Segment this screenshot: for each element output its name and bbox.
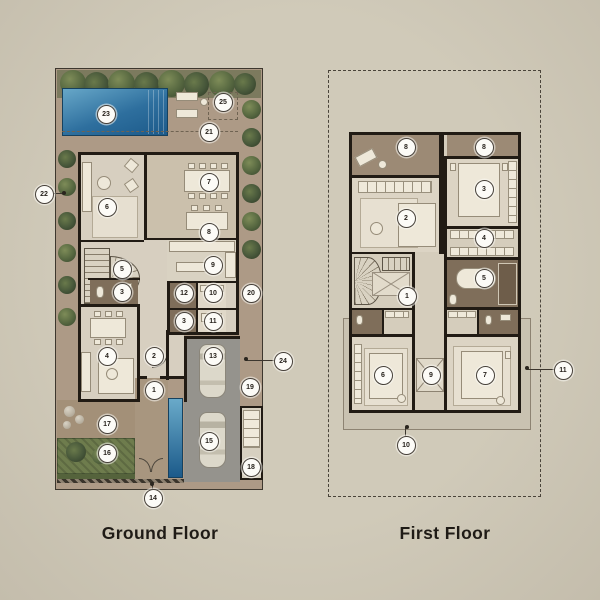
keynote-marker-9: 9 — [422, 366, 441, 385]
pouf — [496, 396, 505, 405]
keynote-marker-16: 16 — [98, 444, 117, 463]
keynote-marker-2: 2 — [145, 347, 164, 366]
kitchen-counter — [225, 252, 236, 278]
keynote-marker-8: 8 — [475, 138, 494, 157]
palm-tree — [58, 212, 76, 230]
palm-tree — [242, 184, 261, 203]
keynote-marker-25: 25 — [214, 93, 233, 112]
keynote-marker-11: 11 — [554, 361, 573, 380]
chair — [210, 193, 217, 199]
desk — [81, 352, 91, 392]
chair — [94, 339, 101, 345]
keynote-marker-12: 12 — [175, 284, 194, 303]
bush — [66, 442, 86, 462]
chair — [94, 311, 101, 317]
chair — [105, 311, 112, 317]
chair — [210, 163, 217, 169]
wall — [184, 336, 240, 339]
keynote-marker-3: 3 — [175, 312, 194, 331]
wall — [412, 252, 415, 413]
wall — [160, 376, 184, 379]
wall — [168, 332, 239, 335]
closet — [385, 311, 409, 318]
keynote-marker-1: 1 — [145, 381, 164, 400]
palm-tree — [58, 276, 76, 294]
chair — [116, 339, 123, 345]
wall — [477, 310, 479, 334]
wall — [382, 310, 384, 334]
keynote-marker-13: 13 — [204, 347, 223, 366]
keynote-marker-22: 22 — [35, 185, 54, 204]
wall — [138, 376, 147, 379]
palm-tree — [58, 244, 76, 262]
wall — [78, 152, 81, 402]
sun-lounger — [176, 92, 198, 101]
keynote-marker-20: 20 — [242, 284, 261, 303]
keynote-marker-6: 6 — [374, 366, 393, 385]
wall — [444, 307, 521, 310]
toilet — [485, 315, 492, 325]
marker-leader-dot — [525, 366, 529, 370]
keynote-marker-2: 2 — [397, 209, 416, 228]
palm-tree — [242, 100, 261, 119]
wall — [81, 240, 144, 242]
wardrobe — [354, 344, 362, 404]
rock — [75, 415, 84, 424]
wall — [349, 175, 441, 178]
keynote-marker-8: 8 — [397, 138, 416, 157]
first-floor-title: First Floor — [330, 523, 560, 544]
wall — [184, 336, 187, 402]
sun-lounger — [176, 109, 198, 118]
nightstand — [505, 351, 511, 359]
keynote-marker-7: 7 — [200, 173, 219, 192]
wall — [236, 152, 239, 334]
rock — [63, 421, 71, 429]
wall — [444, 257, 521, 260]
wall — [518, 132, 521, 413]
keynote-marker-15: 15 — [200, 432, 219, 451]
toilet — [449, 294, 457, 305]
wall — [168, 308, 238, 310]
keynote-marker-10: 10 — [397, 436, 416, 455]
chair — [116, 311, 123, 317]
keynote-marker-24: 24 — [274, 352, 293, 371]
chair — [199, 193, 206, 199]
palm-tree — [242, 240, 261, 259]
shower — [498, 263, 517, 305]
keynote-marker-7: 7 — [476, 366, 495, 385]
wall — [78, 304, 140, 307]
wall — [349, 334, 412, 337]
keynote-marker-10: 10 — [204, 284, 223, 303]
wall — [444, 156, 447, 413]
keynote-marker-9: 9 — [204, 256, 223, 275]
ground-floor-title: Ground Floor — [40, 523, 280, 544]
wall — [78, 152, 239, 155]
kitchen-island — [176, 262, 206, 272]
wardrobe — [358, 181, 432, 193]
toilet — [96, 286, 104, 298]
keynote-marker-11: 11 — [204, 312, 223, 331]
wall — [349, 132, 521, 135]
wall — [349, 410, 521, 413]
marker-leader-dot — [405, 425, 409, 429]
wall — [444, 334, 521, 337]
pouf — [378, 160, 387, 169]
wardrobe — [450, 247, 514, 256]
wall — [349, 308, 412, 310]
keynote-marker-19: 19 — [241, 378, 260, 397]
family-table — [90, 318, 126, 338]
keynote-marker-17: 17 — [98, 415, 117, 434]
kitchen-counter — [169, 241, 235, 252]
wall — [144, 152, 147, 240]
keynote-marker-6: 6 — [98, 198, 117, 217]
wall — [349, 252, 415, 254]
keynote-marker-8: 8 — [200, 223, 219, 242]
sofa — [82, 162, 92, 212]
keynote-marker-18: 18 — [242, 458, 261, 477]
chair — [221, 193, 228, 199]
wall — [167, 281, 239, 283]
pool-steps — [148, 90, 166, 134]
store-shelves — [243, 410, 260, 448]
rock — [64, 406, 75, 417]
boundary-wall — [57, 479, 184, 483]
marker-leader-dot — [62, 191, 66, 195]
chair — [188, 193, 195, 199]
coffee-table — [97, 176, 111, 190]
chair — [221, 163, 228, 169]
pouf — [370, 222, 383, 235]
side-table — [200, 98, 208, 106]
floor-plan-sheet: Ground Floor First Floor 232521226789531… — [0, 0, 600, 600]
palm-tree — [58, 308, 76, 326]
keynote-marker-3: 3 — [113, 283, 132, 302]
chair — [188, 163, 195, 169]
marker-leader-dot — [244, 357, 248, 361]
keynote-marker-4: 4 — [475, 229, 494, 248]
chair — [203, 205, 210, 211]
keynote-marker-5: 5 — [475, 269, 494, 288]
toilet — [356, 315, 363, 325]
palm-tree — [242, 212, 261, 231]
keynote-marker-23: 23 — [97, 105, 116, 124]
keynote-marker-5: 5 — [113, 260, 132, 279]
wall — [166, 330, 169, 380]
keynote-marker-3: 3 — [475, 180, 494, 199]
pouf — [106, 368, 118, 380]
palm-tree — [242, 128, 261, 147]
water-feature — [168, 398, 183, 478]
chair — [191, 205, 198, 211]
keynote-marker-4: 4 — [98, 347, 117, 366]
palm-tree — [58, 150, 76, 168]
wall — [147, 238, 239, 240]
chair — [199, 163, 206, 169]
closet — [448, 311, 476, 318]
wall — [78, 399, 140, 402]
wall — [88, 278, 140, 280]
chair — [215, 205, 222, 211]
keynote-marker-21: 21 — [200, 123, 219, 142]
wall — [137, 304, 140, 402]
nightstand — [450, 163, 456, 171]
washbasin — [500, 314, 511, 321]
wardrobe — [508, 161, 517, 223]
keynote-marker-14: 14 — [144, 489, 163, 508]
marker-leader-dot — [150, 482, 154, 486]
palm-tree — [242, 156, 261, 175]
pouf — [397, 394, 406, 403]
chair — [105, 339, 112, 345]
keynote-marker-1: 1 — [398, 287, 417, 306]
stair-flight — [382, 257, 410, 271]
